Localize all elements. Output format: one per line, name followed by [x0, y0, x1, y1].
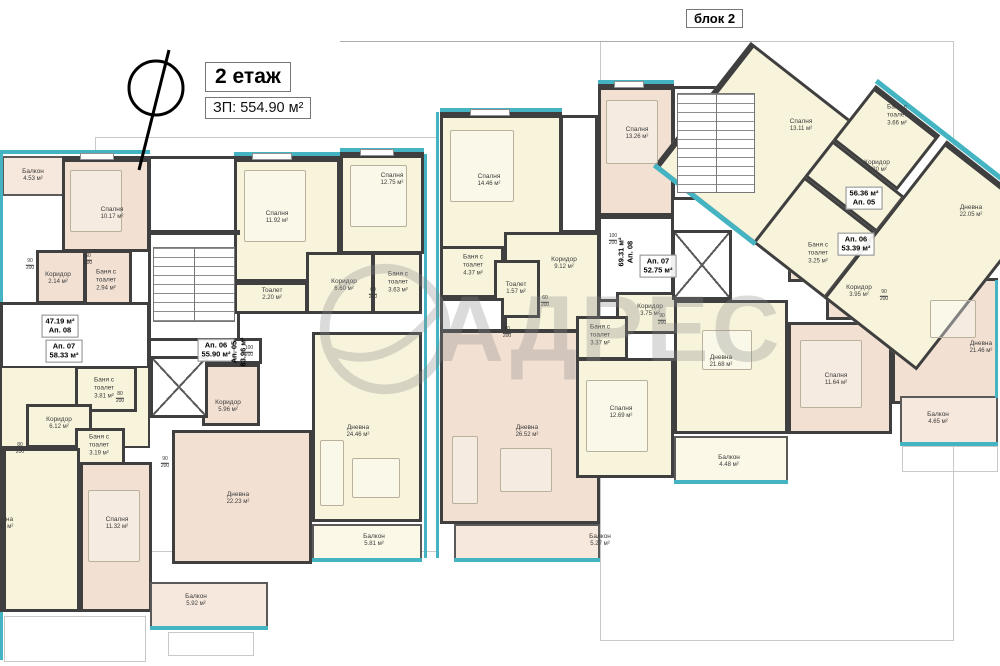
room-label: Дневна26.52 м² — [516, 424, 539, 440]
room-label: Дневна24.46 м² — [347, 424, 370, 440]
room-label: Дневна20.51 м² — [0, 516, 13, 532]
ground-outline — [168, 632, 254, 656]
room-label: Баня с тоалет3.19 м² — [82, 434, 116, 459]
staircase — [677, 93, 755, 193]
exterior-wall-accent — [312, 558, 422, 562]
built-area-label: ЗП: 554.90 м² — [205, 97, 311, 119]
room-label: Дневна21.68 м² — [710, 354, 733, 370]
bed-furniture — [450, 130, 514, 202]
room-label: Коридор5.96 м² — [215, 399, 241, 415]
wall-accent — [148, 230, 240, 235]
window — [252, 153, 292, 160]
room-label: Спалня11.64 м² — [825, 372, 848, 388]
north-arrow-icon — [120, 46, 192, 178]
dimension-label: 80200 — [16, 443, 24, 456]
window — [360, 149, 394, 156]
room-label: Баня с тоалет3.25 м² — [801, 242, 835, 267]
ground-outline — [4, 616, 146, 662]
sofa-furniture — [320, 440, 344, 506]
room-label: Тоалет1.57 м² — [506, 281, 527, 297]
room-label: Коридор3.20 м² — [864, 159, 890, 175]
room-label: Спалня10.17 м² — [101, 206, 124, 222]
room-label: Дневна22.05 м² — [960, 204, 983, 220]
apartment-label: 47.19 м²Ап. 08 — [42, 315, 79, 338]
dimension-label: 80200 — [503, 327, 511, 340]
closet-area — [560, 115, 598, 233]
entry-hall — [440, 298, 504, 332]
room-label: Дневна21.46 м² — [970, 340, 993, 356]
room-label: Баня с тоалет3.66 м² — [880, 104, 914, 129]
room-label: Дневна22.23 м² — [227, 491, 250, 507]
room-label: Баня с тоалет4.37 м² — [456, 254, 490, 279]
room-label: Коридор3.95 м² — [846, 284, 872, 300]
apartment-label: Ап. 0583.96 м² — [229, 335, 250, 370]
elevator-shaft — [672, 230, 732, 300]
room-label: Коридор9.12 м² — [551, 256, 577, 272]
dimension-label: 90200 — [26, 259, 34, 272]
table-furniture — [500, 448, 552, 492]
room-label: Тоалет2.20 м² — [262, 287, 283, 303]
exterior-wall-accent — [900, 442, 998, 446]
dimension-label: 60200 — [84, 254, 92, 267]
window — [614, 81, 644, 88]
apartment-label: 56.36 м²Ап. 05 — [846, 187, 883, 210]
room-label: Балкон4.65 м² — [927, 411, 949, 427]
floorplan-canvas: Балкон4.53 м² Спалня10.17 м² Коридор2.14… — [0, 0, 1000, 666]
exterior-wall-accent — [454, 558, 600, 562]
block-label: блок 2 — [686, 9, 743, 28]
apartment-label: 69.31 м²Ап. 08 — [616, 235, 637, 270]
leader-line — [340, 41, 760, 42]
exterior-wall-accent — [0, 198, 3, 302]
staircase — [153, 247, 235, 322]
room-label: Баня с тоалет2.94 м² — [89, 269, 123, 294]
room-label: Балкон5.81 м² — [363, 533, 385, 549]
room-label: Баня с тоалет3.37 м² — [583, 324, 617, 349]
apartment-label: Ап. 0752.75 м² — [640, 255, 677, 278]
dimension-label: 90200 — [161, 457, 169, 470]
floor-title: 2 етаж — [205, 62, 291, 92]
room-label: Спалня11.92 м² — [266, 210, 289, 226]
room-label: Спалня12.69 м² — [610, 405, 633, 421]
room-label: Балкон5.27 м² — [589, 533, 611, 549]
apartment-label: Ап. 0653.39 м² — [838, 233, 875, 256]
room-label: Баня с тоалет3.81 м² — [87, 377, 121, 402]
exterior-wall-accent — [436, 112, 439, 558]
exterior-wall-accent — [424, 154, 427, 558]
exterior-wall-accent — [0, 612, 3, 660]
ground-outline — [902, 446, 998, 472]
room-balcony — [900, 396, 998, 446]
room-label: Коридор6.60 м² — [331, 278, 357, 294]
room-label: Спалня11.32 м² — [106, 516, 129, 532]
room-balcony — [454, 524, 600, 562]
apartment-label: Ап. 0758.33 м² — [46, 340, 83, 363]
bed-furniture — [244, 170, 306, 242]
window — [80, 153, 114, 160]
exterior-wall-accent — [0, 152, 3, 198]
sofa-furniture — [452, 436, 478, 504]
table-furniture — [930, 300, 976, 338]
room-label: Коридор3.75 м² — [637, 303, 663, 319]
elevator-shaft — [150, 356, 208, 418]
room-balcony — [150, 582, 268, 630]
room-label: Спалня12.75 м² — [381, 172, 404, 188]
room-label: Спалня14.46 м² — [478, 173, 501, 189]
window — [470, 109, 510, 116]
table-furniture — [352, 458, 400, 498]
room-label: Коридор6.12 м² — [46, 416, 72, 432]
room-corridor — [202, 364, 260, 426]
room-label: Балкон4.48 м² — [718, 454, 740, 470]
dimension-label: 90200 — [880, 290, 888, 303]
room-label: Коридор2.14 м² — [45, 271, 71, 287]
exterior-wall-accent — [150, 626, 268, 630]
room-label: Спалня13.26 м² — [626, 126, 649, 142]
bed-furniture — [70, 170, 122, 232]
exterior-wall-accent — [995, 280, 998, 398]
dimension-label: 60200 — [369, 288, 377, 301]
dimension-label: 60200 — [541, 296, 549, 309]
room-label: Спалня13.11 м² — [790, 118, 813, 134]
room-label: Балкон5.92 м² — [185, 593, 207, 609]
exterior-wall-accent — [674, 480, 788, 484]
room-label: Баня с тоалет3.63 м² — [381, 271, 415, 296]
room-label: Балкон4.53 м² — [22, 168, 44, 184]
